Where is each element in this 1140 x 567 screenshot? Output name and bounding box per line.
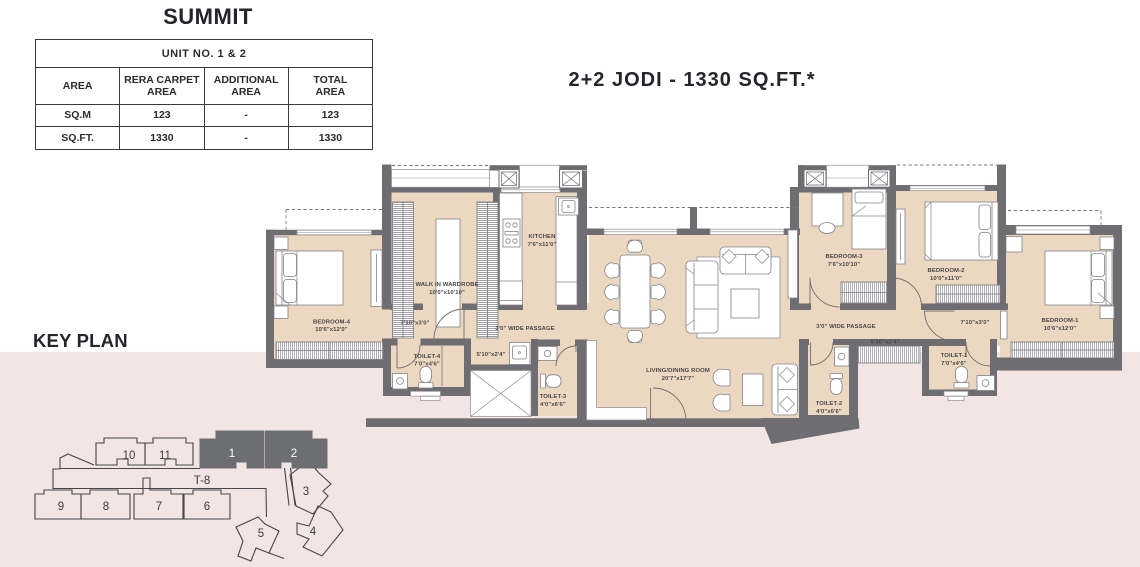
svg-text:11: 11 [159,450,171,462]
svg-text:KITCHEN: KITCHEN [529,234,556,240]
svg-text:9: 9 [58,501,64,513]
svg-text:6: 6 [204,501,210,513]
svg-text:5'10"x2'4": 5'10"x2'4" [870,340,899,346]
svg-text:5'10"x2'4": 5'10"x2'4" [476,352,505,358]
svg-text:7'6"x11'0": 7'6"x11'0" [528,242,557,248]
svg-text:10'6"x12'0": 10'6"x12'0" [315,327,348,333]
svg-text:TOILET-1: TOILET-1 [941,353,968,359]
svg-text:7: 7 [156,501,162,513]
svg-text:7'0"x4'6": 7'0"x4'6" [941,361,967,367]
svg-text:7'10"x3'0": 7'10"x3'0" [960,320,989,326]
svg-text:1: 1 [229,448,235,460]
svg-text:BEDROOM-2: BEDROOM-2 [928,268,966,274]
svg-text:10: 10 [123,450,136,462]
svg-text:4'0"x6'6": 4'0"x6'6" [540,402,566,408]
svg-text:10'0"x10'10": 10'0"x10'10" [429,290,465,296]
svg-text:4'0"x6'6": 4'0"x6'6" [816,409,842,415]
svg-text:4: 4 [310,526,317,538]
svg-text:LIVING/DINING ROOM: LIVING/DINING ROOM [646,368,710,374]
svg-text:10'0"x11'0": 10'0"x11'0" [930,276,962,282]
svg-text:7'10"x3'0": 7'10"x3'0" [400,321,429,327]
svg-text:5: 5 [258,528,264,540]
svg-text:TOILET-2: TOILET-2 [816,401,843,407]
svg-text:3'0" WIDE PASSAGE: 3'0" WIDE PASSAGE [495,326,554,332]
svg-text:BEDROOM-1: BEDROOM-1 [1042,318,1080,324]
svg-text:TOILET-3: TOILET-3 [540,394,567,400]
svg-text:7'6"x10'10": 7'6"x10'10" [828,262,861,268]
svg-text:WALK IN WARDROBE: WALK IN WARDROBE [415,282,478,288]
svg-text:3: 3 [303,486,309,498]
svg-text:T-8: T-8 [194,475,211,487]
svg-text:2: 2 [291,448,297,460]
svg-text:BEDROOM-4: BEDROOM-4 [313,320,351,326]
svg-text:10'6"x12'0": 10'6"x12'0" [1044,326,1077,332]
svg-text:TOILET-4: TOILET-4 [414,354,441,360]
svg-text:8: 8 [103,501,109,513]
svg-text:7'0"x4'6": 7'0"x4'6" [414,362,440,368]
svg-text:3'0" WIDE PASSAGE: 3'0" WIDE PASSAGE [816,324,875,330]
svg-text:20'7"x17'7": 20'7"x17'7" [662,376,695,382]
svg-text:BEDROOM-3: BEDROOM-3 [826,254,864,260]
